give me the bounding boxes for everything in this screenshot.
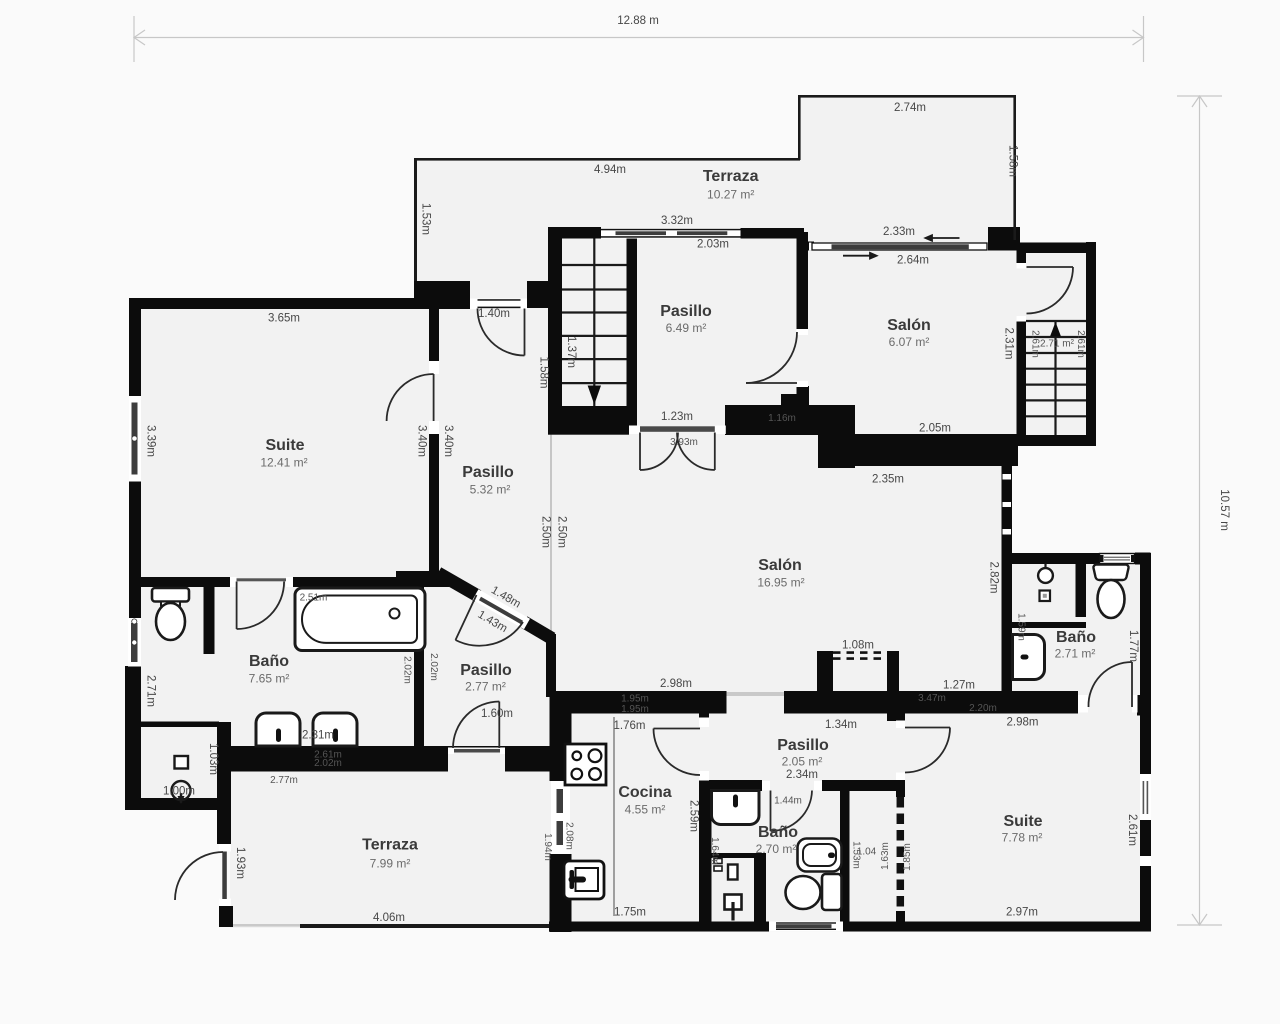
svg-text:16.95 m²: 16.95 m² (757, 576, 804, 590)
svg-text:7.65 m²: 7.65 m² (249, 672, 290, 686)
svg-text:Salón: Salón (758, 557, 802, 574)
svg-text:4.55 m²: 4.55 m² (625, 803, 666, 817)
svg-text:1.23m: 1.23m (661, 411, 693, 423)
svg-text:2.31m: 2.31m (302, 730, 334, 742)
svg-text:2.59m: 2.59m (688, 800, 700, 832)
svg-text:2.31m: 2.31m (1003, 328, 1015, 360)
svg-text:1.00m: 1.00m (163, 786, 195, 798)
svg-text:3.65m: 3.65m (268, 313, 300, 325)
svg-text:3.93m: 3.93m (670, 437, 698, 448)
svg-text:2.05 m²: 2.05 m² (782, 755, 823, 769)
svg-text:1.03m: 1.03m (207, 743, 219, 775)
svg-text:3.32m: 3.32m (661, 215, 693, 227)
svg-text:2.71 m²: 2.71 m² (1040, 339, 1075, 350)
svg-text:1.59m: 1.59m (1016, 613, 1027, 641)
svg-text:1.63m: 1.63m (880, 842, 891, 870)
svg-text:4.94m: 4.94m (594, 164, 626, 176)
svg-text:2.51m: 2.51m (300, 593, 328, 604)
svg-text:1.40m: 1.40m (478, 308, 510, 320)
svg-text:1.75m: 1.75m (614, 907, 646, 919)
svg-text:Terraza: Terraza (703, 168, 759, 185)
svg-text:1.60m: 1.60m (481, 708, 513, 720)
svg-text:2.71 m²: 2.71 m² (1055, 647, 1096, 661)
svg-text:2.64m: 2.64m (897, 255, 929, 267)
svg-text:1.77m: 1.77m (1127, 630, 1139, 662)
svg-text:2.33m: 2.33m (883, 226, 915, 238)
svg-text:3.39m: 3.39m (145, 425, 157, 457)
svg-text:1.27m: 1.27m (943, 680, 975, 692)
svg-text:2.77 m²: 2.77 m² (465, 680, 506, 694)
svg-text:2.98m: 2.98m (1007, 717, 1039, 729)
svg-text:2.77m: 2.77m (270, 775, 298, 786)
svg-text:12.88 m: 12.88 m (617, 15, 659, 27)
svg-text:Baño: Baño (1056, 629, 1096, 646)
svg-text:2.35m: 2.35m (872, 474, 904, 486)
svg-text:Cocina: Cocina (618, 784, 671, 801)
svg-text:10.57 m: 10.57 m (1218, 489, 1230, 531)
svg-text:7.78 m²: 7.78 m² (1002, 831, 1043, 845)
svg-text:2.61m: 2.61m (1126, 814, 1138, 846)
svg-text:Pasillo: Pasillo (777, 737, 829, 754)
svg-text:1.58m: 1.58m (538, 357, 550, 389)
svg-text:Baño: Baño (249, 653, 289, 670)
svg-text:1.34m: 1.34m (825, 719, 857, 731)
svg-text:1.94m: 1.94m (542, 833, 553, 861)
svg-text:Terraza: Terraza (362, 837, 418, 854)
svg-text:Pasillo: Pasillo (462, 464, 514, 481)
svg-text:1.37m: 1.37m (565, 336, 577, 368)
svg-text:5.32 m²: 5.32 m² (470, 483, 511, 497)
svg-text:2.61m: 2.61m (1030, 330, 1041, 358)
svg-text:1.95m: 1.95m (621, 694, 649, 705)
svg-text:7.99 m²: 7.99 m² (370, 857, 411, 871)
svg-text:3.40m: 3.40m (416, 425, 428, 457)
svg-text:Pasillo: Pasillo (660, 303, 712, 320)
svg-text:2.82m: 2.82m (988, 562, 1000, 594)
svg-text:Suite: Suite (265, 437, 304, 454)
svg-text:2.70 m²: 2.70 m² (756, 842, 797, 856)
svg-text:2.20m: 2.20m (969, 703, 997, 714)
svg-text:2.05m: 2.05m (919, 423, 951, 435)
svg-text:2.34m: 2.34m (786, 769, 818, 781)
svg-text:1.85m: 1.85m (902, 843, 913, 871)
svg-text:6.07 m²: 6.07 m² (889, 335, 930, 349)
svg-text:2.61m: 2.61m (1075, 330, 1086, 358)
svg-text:1.58m: 1.58m (1007, 145, 1019, 177)
svg-text:Pasillo: Pasillo (460, 662, 512, 679)
svg-text:2.71m: 2.71m (145, 675, 157, 707)
svg-text:2.50m: 2.50m (556, 516, 568, 548)
svg-text:1.44m: 1.44m (774, 796, 802, 807)
svg-text:1.08m: 1.08m (842, 640, 874, 652)
svg-text:12.41 m²: 12.41 m² (260, 456, 307, 470)
svg-text:Salón: Salón (887, 317, 931, 334)
svg-text:2.03m: 2.03m (697, 239, 729, 251)
svg-text:1.93m: 1.93m (234, 847, 246, 879)
svg-text:2.02m: 2.02m (314, 758, 342, 769)
svg-text:4.06m: 4.06m (373, 912, 405, 924)
svg-text:2.02m: 2.02m (402, 656, 413, 684)
svg-text:1.16m: 1.16m (768, 413, 796, 424)
svg-text:6.49 m²: 6.49 m² (666, 321, 707, 335)
svg-text:2.98m: 2.98m (660, 678, 692, 690)
svg-text:1.04: 1.04 (857, 847, 877, 858)
svg-text:2.97m: 2.97m (1006, 907, 1038, 919)
svg-text:1.76m: 1.76m (614, 720, 646, 732)
svg-text:3.40m: 3.40m (442, 425, 454, 457)
svg-text:2.02m: 2.02m (428, 653, 439, 681)
svg-text:1.95m: 1.95m (621, 704, 649, 715)
svg-text:3.47m: 3.47m (918, 693, 946, 704)
svg-text:1.53m: 1.53m (420, 203, 432, 235)
svg-text:2.08m: 2.08m (564, 822, 575, 850)
svg-text:10.27 m²: 10.27 m² (707, 188, 754, 202)
svg-text:1.64m: 1.64m (709, 837, 720, 865)
svg-text:2.74m: 2.74m (894, 102, 926, 114)
svg-text:Suite: Suite (1003, 813, 1042, 830)
svg-text:2.50m: 2.50m (540, 516, 552, 548)
svg-text:Baño: Baño (758, 824, 798, 841)
